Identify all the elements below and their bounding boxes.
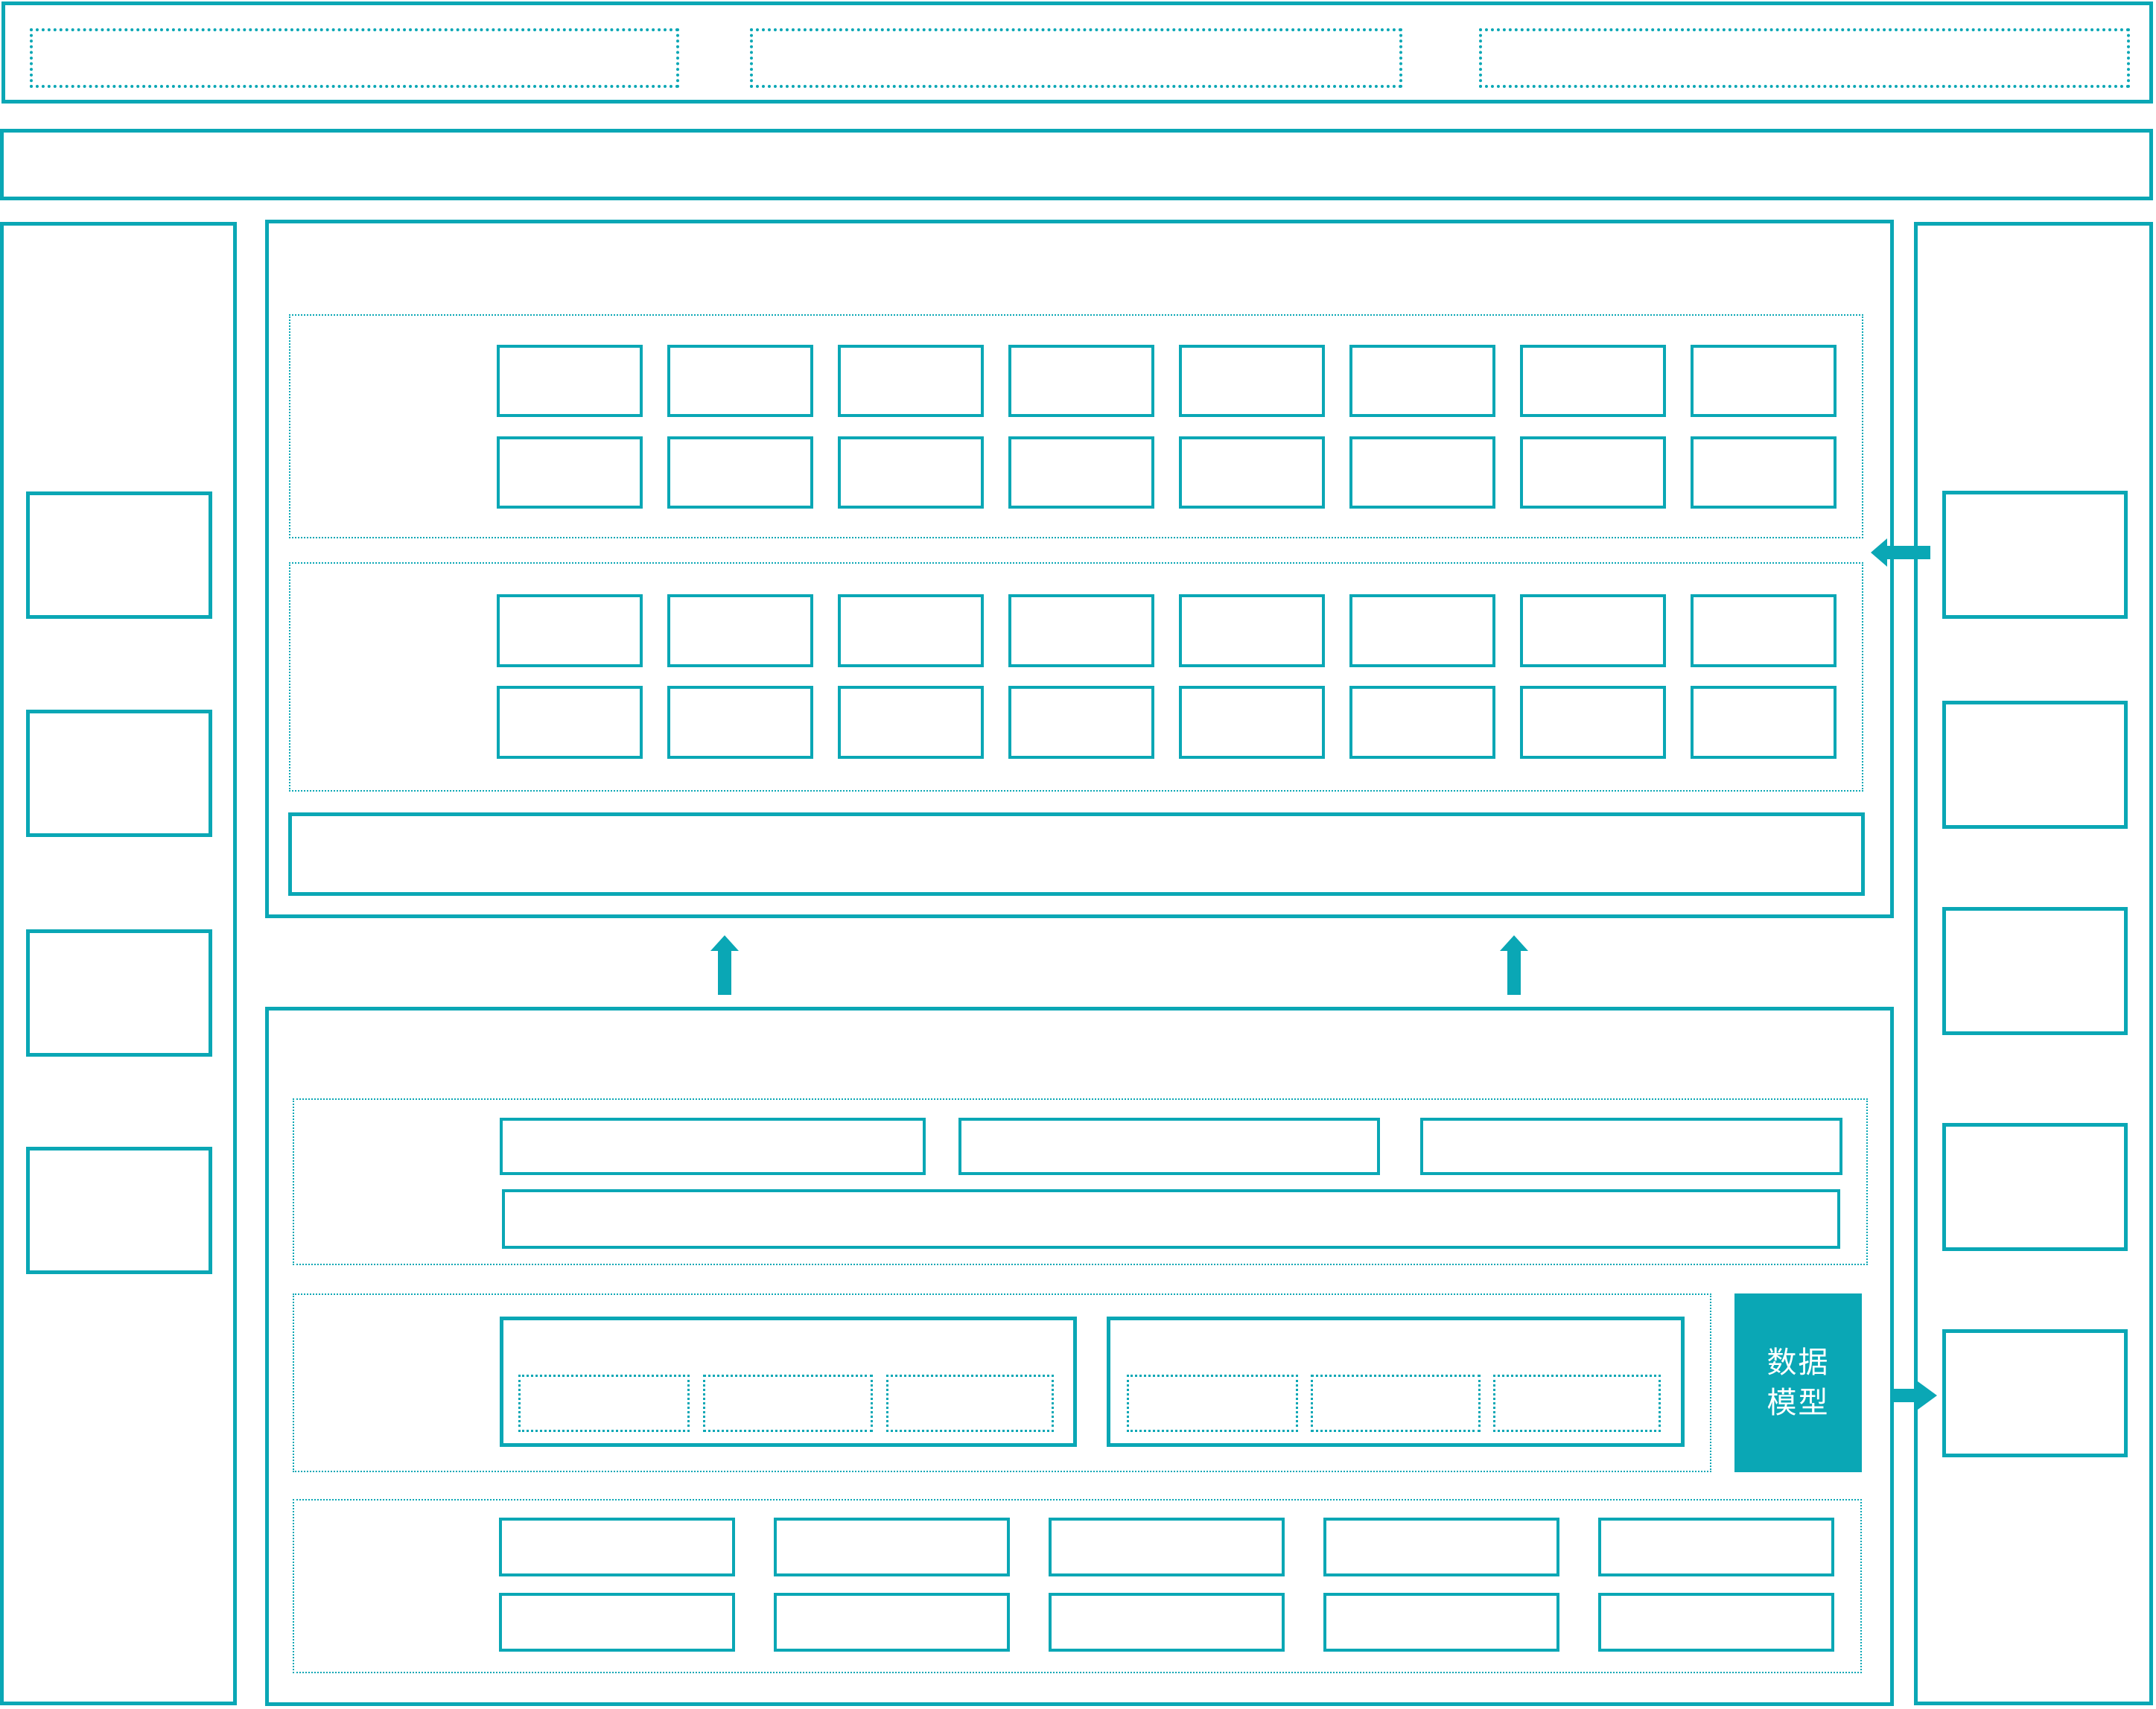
output-cell	[774, 1518, 1010, 1576]
model-group-a	[500, 1317, 1077, 1447]
module-grid-1	[497, 345, 1837, 509]
model-group-b	[1107, 1317, 1685, 1447]
model-slot	[1493, 1375, 1661, 1432]
header-slot-1	[30, 28, 679, 88]
output-cell	[1049, 1593, 1285, 1652]
left-sidebar-box-4	[26, 1147, 212, 1274]
module-cell	[1179, 686, 1325, 759]
module-cell	[667, 345, 813, 417]
module-cell	[497, 594, 643, 667]
right-sidebar-box-2	[1942, 701, 2128, 829]
output-cell	[774, 1593, 1010, 1652]
pipeline-box-1	[500, 1118, 926, 1175]
module-cell	[1179, 345, 1325, 417]
module-grid-2	[497, 594, 1837, 759]
output-cell	[499, 1593, 735, 1652]
module-cell	[1008, 436, 1154, 509]
right-sidebar	[1914, 222, 2153, 1705]
module-cell	[667, 436, 813, 509]
output-cell	[1323, 1593, 1559, 1652]
module-cell	[497, 345, 643, 417]
module-cell	[1349, 594, 1495, 667]
up-arrow-icon	[1500, 935, 1528, 995]
module-cell	[1691, 594, 1837, 667]
module-cell	[1520, 594, 1666, 667]
module-cell	[1008, 345, 1154, 417]
output-grid	[499, 1518, 1834, 1652]
module-cell	[838, 594, 984, 667]
model-slot	[703, 1375, 873, 1432]
left-sidebar-box-1	[26, 491, 212, 619]
module-cell	[1520, 686, 1666, 759]
model-slot	[518, 1375, 690, 1432]
output-cell	[1049, 1518, 1285, 1576]
summary-bar	[288, 812, 1865, 896]
header-slot-2	[750, 28, 1402, 88]
architecture-diagram: 数据模型	[0, 0, 2156, 1709]
pipeline-bar	[502, 1189, 1840, 1249]
toolbar-bar	[0, 129, 2153, 200]
pipeline-box-2	[958, 1118, 1380, 1175]
module-cell	[1520, 436, 1666, 509]
left-sidebar	[0, 222, 237, 1705]
output-cell	[499, 1518, 735, 1576]
module-cell	[838, 436, 984, 509]
module-cell	[1349, 436, 1495, 509]
left-sidebar-box-2	[26, 710, 212, 837]
module-cell	[1008, 686, 1154, 759]
right-sidebar-box-4	[1942, 1123, 2128, 1251]
output-cell	[1323, 1518, 1559, 1576]
module-cell	[838, 686, 984, 759]
data-model-box: 数据模型	[1734, 1293, 1862, 1472]
right-sidebar-box-5	[1942, 1329, 2128, 1457]
output-cell	[1598, 1518, 1834, 1576]
module-cell	[1349, 345, 1495, 417]
module-cell	[1520, 345, 1666, 417]
model-slot	[1127, 1375, 1298, 1432]
left-arrow-icon	[1871, 538, 1930, 567]
module-cell	[1691, 345, 1837, 417]
data-model-label: 数据模型	[1763, 1343, 1834, 1423]
module-cell	[667, 686, 813, 759]
pipeline-box-3	[1420, 1118, 1842, 1175]
top-bar	[1, 1, 2153, 104]
model-slot	[886, 1375, 1054, 1432]
module-cell	[1691, 436, 1837, 509]
right-sidebar-box-3	[1942, 907, 2128, 1035]
header-slot-3	[1479, 28, 2130, 88]
module-cell	[667, 594, 813, 667]
up-arrow-icon	[710, 935, 739, 995]
module-cell	[1349, 686, 1495, 759]
output-cell	[1598, 1593, 1834, 1652]
module-cell	[497, 686, 643, 759]
module-cell	[1179, 436, 1325, 509]
left-sidebar-box-3	[26, 929, 212, 1057]
module-cell	[1008, 594, 1154, 667]
module-cell	[1691, 686, 1837, 759]
model-slot	[1311, 1375, 1481, 1432]
module-cell	[497, 436, 643, 509]
module-cell	[1179, 594, 1325, 667]
module-cell	[838, 345, 984, 417]
right-sidebar-box-1	[1942, 491, 2128, 619]
